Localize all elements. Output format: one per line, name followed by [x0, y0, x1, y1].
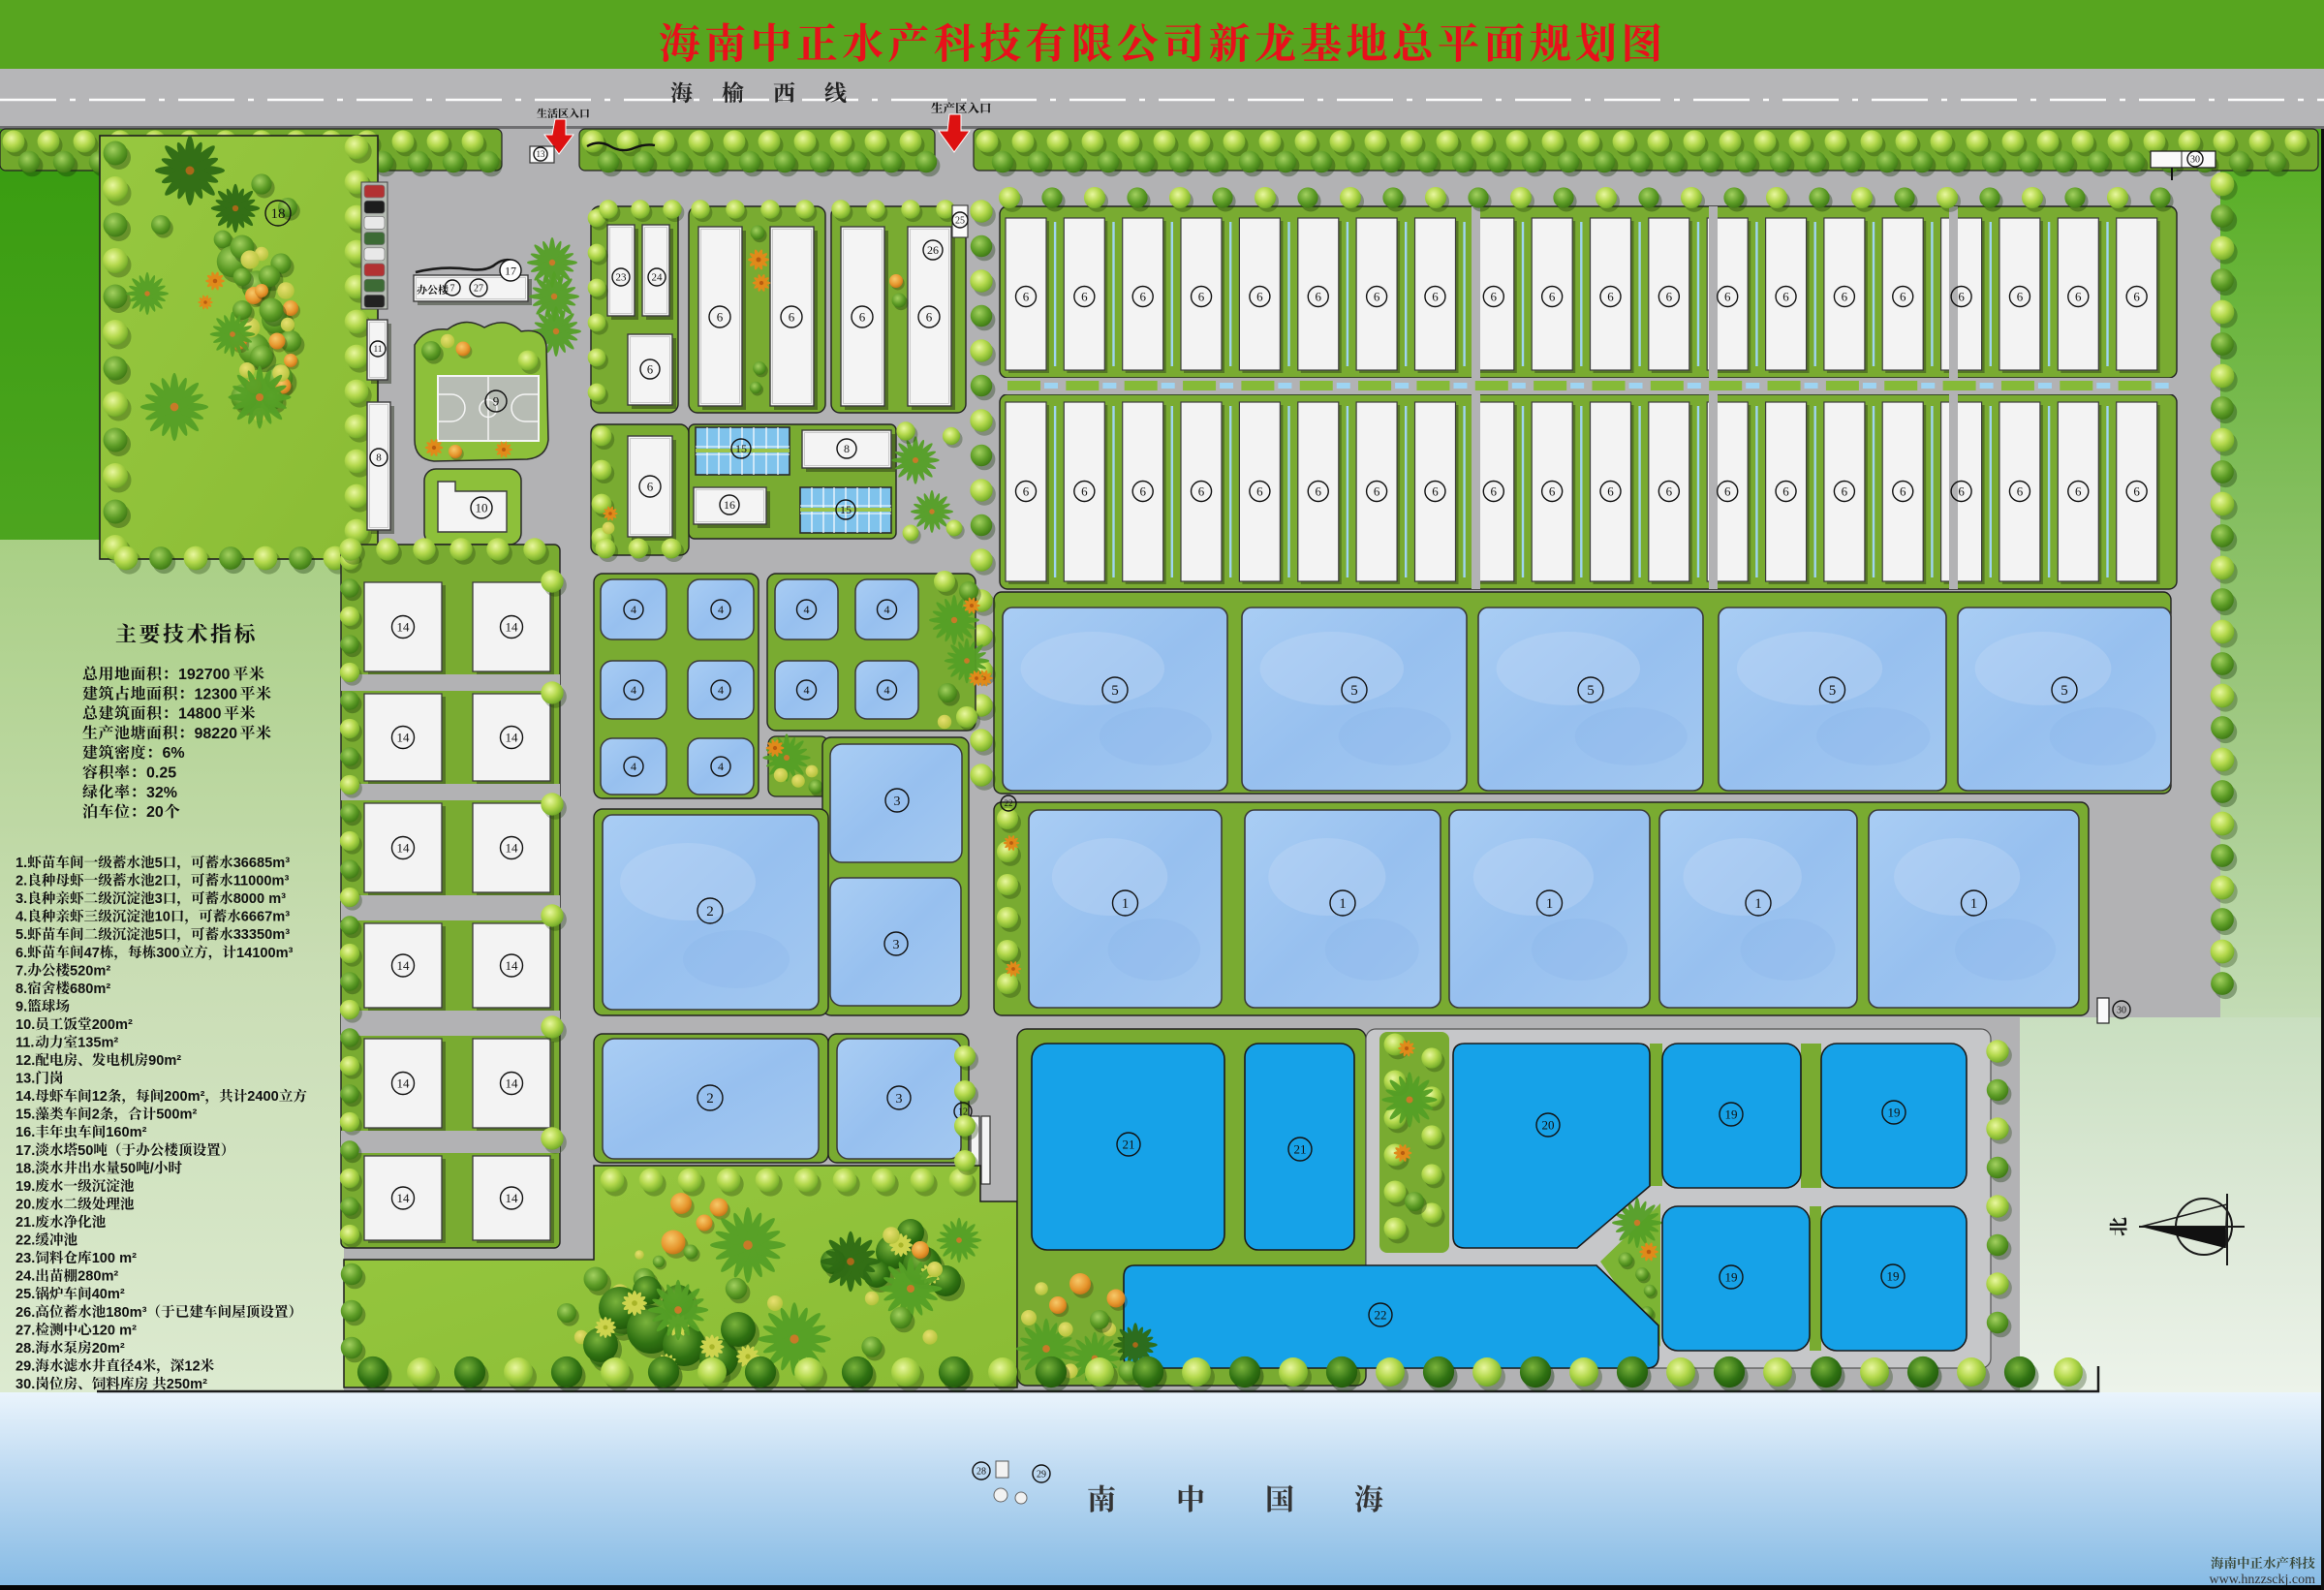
svg-text:14: 14 — [397, 619, 411, 634]
svg-text:4: 4 — [631, 603, 636, 616]
svg-text:6: 6 — [647, 479, 654, 493]
svg-text:50: 50 — [120, 1161, 136, 1176]
svg-text:6: 6 — [1374, 289, 1380, 303]
svg-text:100 m²: 100 m² — [92, 1251, 137, 1266]
svg-text:180m³: 180m³ — [106, 1305, 146, 1321]
svg-text:14: 14 — [506, 1191, 519, 1205]
svg-text:135m²: 135m² — [77, 1036, 118, 1051]
svg-text:6: 6 — [1549, 483, 1556, 498]
svg-text:14.: 14. — [15, 1089, 35, 1105]
svg-text:6: 6 — [1724, 289, 1731, 303]
svg-text:1: 1 — [1122, 896, 1130, 912]
svg-text:5: 5 — [155, 927, 163, 943]
svg-text:19.: 19. — [15, 1179, 35, 1195]
svg-text:14: 14 — [397, 958, 411, 973]
svg-text:3: 3 — [155, 891, 163, 907]
svg-text:26.: 26. — [15, 1305, 35, 1321]
svg-text:22: 22 — [1375, 1307, 1387, 1322]
svg-text:14: 14 — [397, 1191, 411, 1205]
svg-text:200m²: 200m² — [92, 1017, 133, 1033]
svg-text:24: 24 — [652, 272, 664, 284]
svg-text:16: 16 — [724, 498, 735, 512]
svg-text:14: 14 — [506, 730, 519, 744]
svg-text:40m²: 40m² — [92, 1287, 125, 1302]
svg-text:6: 6 — [2075, 483, 2082, 498]
svg-text:520m²: 520m² — [70, 963, 110, 979]
svg-text:30.: 30. — [15, 1377, 35, 1392]
svg-text:24.: 24. — [15, 1269, 35, 1285]
svg-text:5.: 5. — [15, 927, 27, 943]
svg-text:300: 300 — [156, 946, 179, 961]
svg-text:680m²: 680m² — [70, 982, 110, 997]
svg-text:11: 11 — [374, 344, 383, 354]
svg-text:4: 4 — [631, 760, 636, 773]
svg-text:6: 6 — [1432, 289, 1439, 303]
svg-text:5: 5 — [155, 856, 163, 871]
svg-text:25.: 25. — [15, 1287, 35, 1302]
svg-text:500m²: 500m² — [156, 1107, 197, 1123]
svg-text:6: 6 — [1842, 289, 1848, 303]
svg-text:6.: 6. — [15, 946, 27, 961]
svg-text:4: 4 — [718, 603, 724, 616]
svg-text:19: 19 — [1888, 1105, 1901, 1119]
svg-text:22: 22 — [1005, 798, 1013, 808]
svg-text:4: 4 — [804, 603, 810, 616]
svg-text:15: 15 — [735, 442, 747, 455]
svg-text:27: 27 — [474, 283, 483, 294]
svg-text:2.: 2. — [15, 874, 27, 889]
svg-text:11.: 11. — [15, 1036, 34, 1051]
svg-text:22.: 22. — [15, 1233, 35, 1249]
svg-text:6: 6 — [2017, 289, 2024, 303]
svg-text:6: 6 — [1782, 483, 1789, 498]
svg-text:19: 19 — [1725, 1107, 1738, 1121]
svg-text:28.: 28. — [15, 1341, 35, 1356]
svg-text:5: 5 — [1350, 683, 1358, 699]
svg-text:6: 6 — [789, 309, 795, 324]
svg-text:6: 6 — [1607, 483, 1614, 498]
svg-text:27.: 27. — [15, 1323, 35, 1338]
svg-text:19: 19 — [1887, 1268, 1900, 1283]
svg-text:5: 5 — [1829, 683, 1837, 699]
svg-text:6: 6 — [1374, 483, 1380, 498]
svg-text:15: 15 — [840, 503, 852, 516]
svg-text:0.25: 0.25 — [146, 765, 176, 782]
svg-text:/: / — [150, 1161, 154, 1176]
svg-text:13.: 13. — [15, 1072, 35, 1087]
svg-text:6: 6 — [859, 309, 866, 324]
svg-text:12.: 12. — [15, 1053, 35, 1069]
svg-text:4: 4 — [135, 1358, 143, 1374]
svg-text:6: 6 — [1023, 483, 1030, 498]
svg-text:25: 25 — [955, 215, 965, 226]
svg-text:4: 4 — [631, 683, 636, 697]
svg-text:17: 17 — [505, 265, 516, 278]
svg-text:29.: 29. — [15, 1358, 35, 1374]
svg-text:21: 21 — [1123, 1137, 1135, 1151]
svg-text:2: 2 — [706, 1091, 714, 1107]
svg-text:6: 6 — [1139, 483, 1146, 498]
svg-text:9: 9 — [493, 393, 500, 408]
svg-text:29: 29 — [1037, 1469, 1046, 1480]
svg-text:6: 6 — [1316, 289, 1322, 303]
svg-text:20m²: 20m² — [92, 1341, 125, 1356]
svg-text:8: 8 — [376, 452, 382, 464]
svg-text:1: 1 — [1339, 896, 1347, 912]
svg-text:200m²: 200m² — [164, 1089, 204, 1105]
svg-text:6: 6 — [1198, 289, 1205, 303]
svg-text:21.: 21. — [15, 1215, 35, 1231]
svg-text:5: 5 — [2061, 683, 2068, 699]
svg-text:1: 1 — [1546, 896, 1554, 912]
svg-text:6: 6 — [1900, 483, 1906, 498]
svg-text:2400: 2400 — [247, 1089, 278, 1105]
svg-text:120 m²: 120 m² — [92, 1323, 137, 1338]
svg-text:90m²: 90m² — [148, 1053, 181, 1069]
svg-text:20: 20 — [1542, 1117, 1555, 1132]
svg-text:8000 m³: 8000 m³ — [233, 891, 286, 907]
svg-text:18: 18 — [271, 206, 286, 222]
svg-text:17.: 17. — [15, 1143, 35, 1159]
svg-text:6: 6 — [2075, 289, 2082, 303]
svg-text:6: 6 — [1842, 483, 1848, 498]
svg-text:4.: 4. — [15, 910, 27, 925]
svg-text:6: 6 — [2133, 483, 2140, 498]
svg-text:23.: 23. — [15, 1251, 35, 1266]
svg-text:32%: 32% — [146, 785, 177, 801]
svg-text:14: 14 — [506, 958, 519, 973]
svg-text:280m²: 280m² — [77, 1269, 118, 1285]
svg-text:12: 12 — [92, 1089, 108, 1105]
svg-text:12: 12 — [184, 1358, 200, 1374]
svg-text:10: 10 — [476, 500, 488, 514]
svg-text:8: 8 — [844, 442, 850, 455]
svg-text:6: 6 — [647, 362, 653, 376]
svg-text:4: 4 — [884, 603, 890, 616]
svg-text:18.: 18. — [15, 1161, 35, 1176]
svg-text:6: 6 — [1256, 289, 1263, 303]
svg-text:3: 3 — [894, 795, 901, 809]
svg-text:5: 5 — [1587, 683, 1595, 699]
svg-text:6: 6 — [1724, 483, 1731, 498]
svg-text:6: 6 — [1081, 483, 1088, 498]
svg-text:3: 3 — [893, 938, 900, 952]
svg-text:14: 14 — [506, 619, 519, 634]
svg-text:21: 21 — [1294, 1141, 1307, 1156]
svg-text:6: 6 — [1666, 483, 1673, 498]
svg-text:6: 6 — [1023, 289, 1030, 303]
svg-text:6: 6 — [1491, 483, 1498, 498]
svg-text:1: 1 — [1754, 896, 1762, 912]
svg-text:30: 30 — [2190, 154, 2200, 165]
svg-text:36685m³: 36685m³ — [233, 856, 291, 871]
svg-text:15.: 15. — [15, 1107, 35, 1123]
svg-text:6: 6 — [1666, 289, 1673, 303]
svg-text:4: 4 — [718, 683, 724, 697]
svg-text:7.: 7. — [15, 963, 27, 979]
svg-text:3: 3 — [896, 1092, 903, 1107]
svg-text:6: 6 — [1432, 483, 1439, 498]
svg-text:6: 6 — [1256, 483, 1263, 498]
svg-text:4: 4 — [718, 760, 724, 773]
svg-text:10.: 10. — [15, 1017, 35, 1033]
svg-text:20.: 20. — [15, 1198, 35, 1213]
svg-text:8.: 8. — [15, 982, 27, 997]
svg-text:6: 6 — [2017, 483, 2024, 498]
svg-text:26: 26 — [927, 243, 939, 257]
svg-text:23: 23 — [616, 272, 628, 284]
svg-text:28: 28 — [976, 1466, 986, 1477]
svg-text:7: 7 — [450, 283, 455, 294]
svg-text:6: 6 — [1139, 289, 1146, 303]
svg-text:14: 14 — [506, 840, 519, 855]
svg-text:6: 6 — [717, 309, 724, 324]
svg-text:2: 2 — [92, 1107, 100, 1123]
svg-text:250m²: 250m² — [167, 1377, 207, 1392]
svg-text:14100m³: 14100m³ — [236, 946, 294, 961]
svg-text:6%: 6% — [163, 745, 185, 762]
svg-text:6: 6 — [1607, 289, 1614, 303]
svg-text:14: 14 — [506, 1076, 519, 1090]
svg-text:9.: 9. — [15, 999, 27, 1014]
svg-text:14: 14 — [397, 1076, 411, 1090]
svg-text:4: 4 — [884, 683, 890, 697]
svg-text:10: 10 — [155, 910, 170, 925]
svg-text:1.: 1. — [15, 856, 27, 871]
svg-text:30: 30 — [2117, 1005, 2126, 1015]
svg-text:6: 6 — [1491, 289, 1498, 303]
svg-text:13: 13 — [537, 149, 546, 159]
svg-text:6: 6 — [1549, 289, 1556, 303]
svg-text:6: 6 — [1081, 289, 1088, 303]
svg-text:19: 19 — [1725, 1269, 1738, 1284]
svg-text:33350m³: 33350m³ — [233, 927, 291, 943]
svg-text:160m²: 160m² — [106, 1125, 146, 1140]
svg-text:16.: 16. — [15, 1125, 35, 1140]
svg-text:98220: 98220 — [195, 726, 238, 742]
svg-text:2: 2 — [155, 874, 163, 889]
svg-text:6: 6 — [926, 309, 933, 324]
svg-text:12300: 12300 — [195, 686, 238, 702]
svg-text:1: 1 — [1970, 896, 1978, 912]
svg-text:6: 6 — [1198, 483, 1205, 498]
svg-text:2: 2 — [706, 904, 714, 920]
svg-text:6: 6 — [1782, 289, 1789, 303]
svg-text:14800: 14800 — [178, 706, 222, 723]
svg-text:www.hnzzsckj.com: www.hnzzsckj.com — [2209, 1573, 2315, 1587]
svg-text:14: 14 — [397, 730, 411, 744]
svg-text:6667m³: 6667m³ — [241, 910, 290, 925]
svg-text:6: 6 — [2133, 289, 2140, 303]
svg-text:47: 47 — [84, 946, 100, 961]
svg-text:50: 50 — [77, 1143, 93, 1159]
svg-text:3.: 3. — [15, 891, 27, 907]
svg-text:6: 6 — [1900, 289, 1906, 303]
svg-text:5: 5 — [1111, 683, 1119, 699]
svg-text:20: 20 — [146, 804, 164, 821]
svg-text:14: 14 — [397, 840, 411, 855]
svg-text:6: 6 — [1316, 483, 1322, 498]
svg-text:192700: 192700 — [178, 667, 230, 683]
svg-text:6: 6 — [1958, 483, 1965, 498]
svg-text:4: 4 — [804, 683, 810, 697]
svg-text:6: 6 — [1958, 289, 1965, 303]
svg-text:11000m³: 11000m³ — [233, 874, 290, 889]
